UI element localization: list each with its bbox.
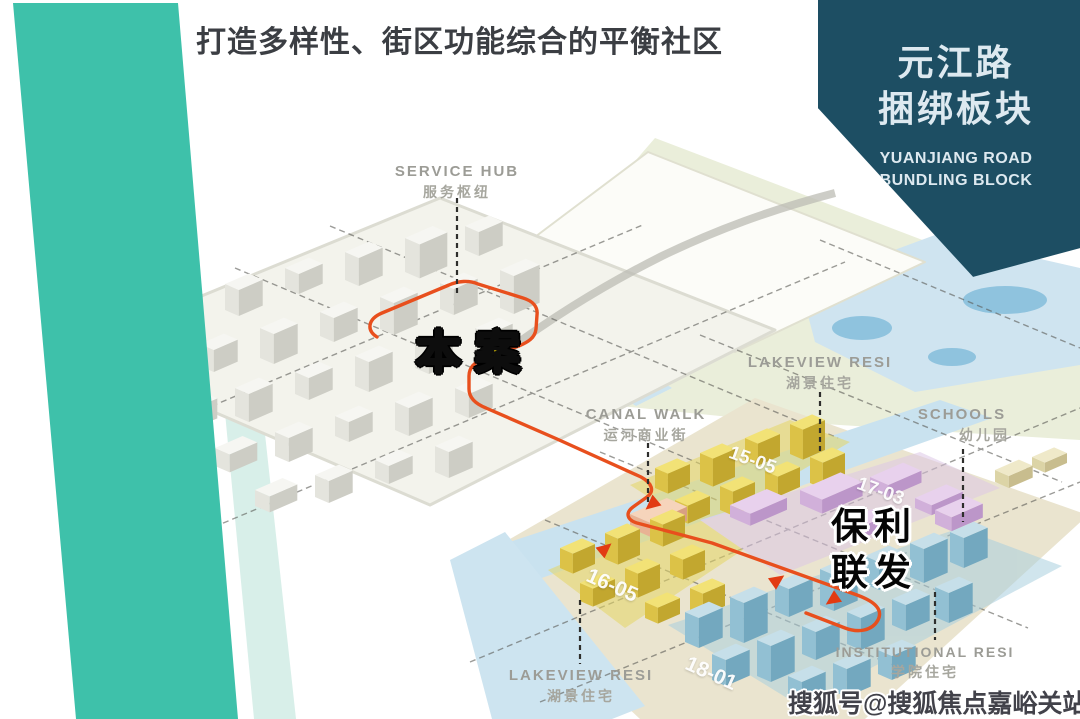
badge-title-zh-1: 元江路 (818, 0, 1080, 86)
developer-callout: 保利 联发 (831, 504, 917, 596)
watermark: 搜狐号@搜狐焦点嘉峪关站 (788, 684, 1080, 719)
page-title: 打造多样性、街区功能综合的平衡社区 (196, 17, 723, 61)
developer-line-1: 保利 (831, 504, 917, 550)
slide: SERVICE HUB 服务枢纽 LAKEVIEW RESI 湖景住宅 CANA… (0, 0, 1080, 719)
badge-title-zh-2: 捆绑板块 (818, 86, 1080, 132)
site-callout: 本案 (416, 316, 534, 381)
developer-line-2: 联发 (831, 550, 917, 596)
